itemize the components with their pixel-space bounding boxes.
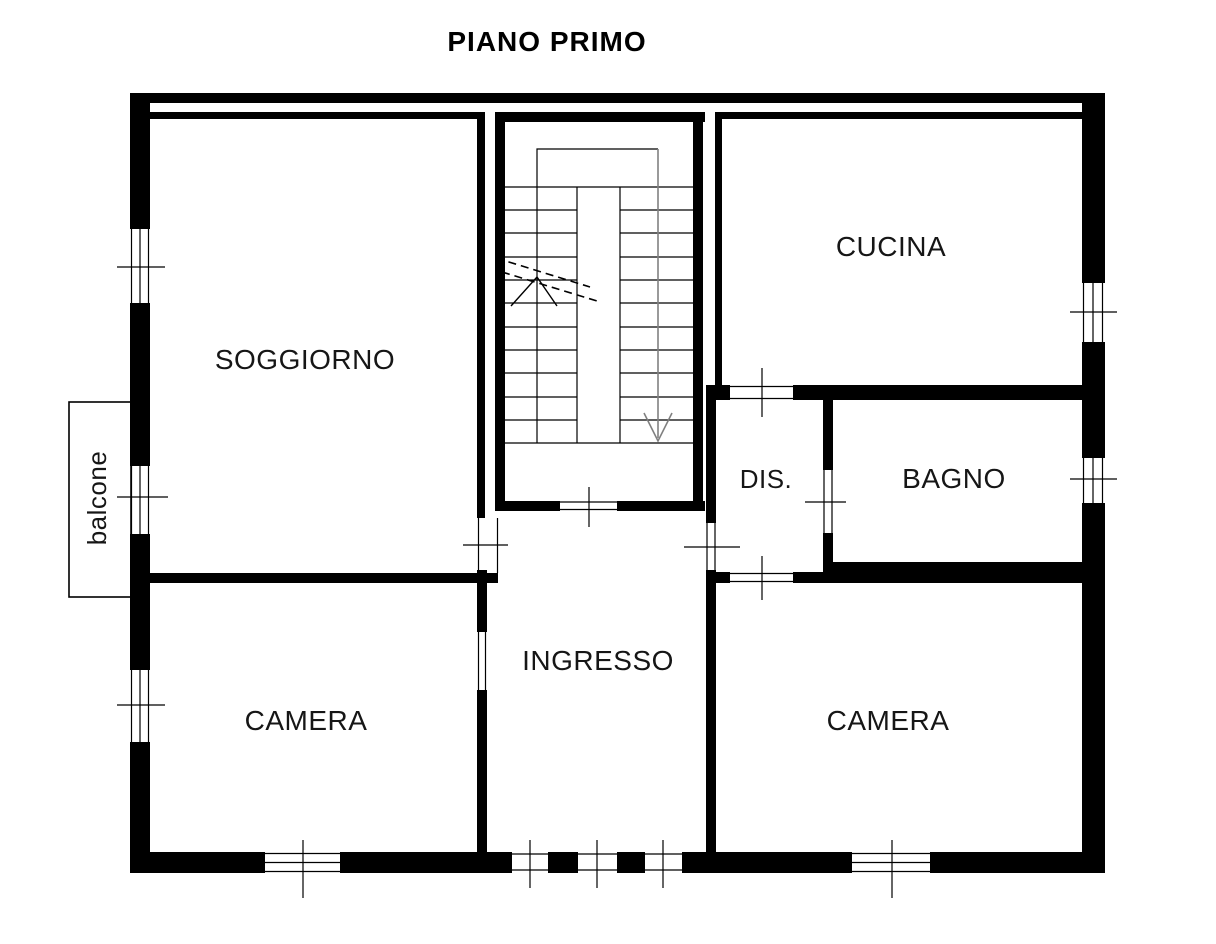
wall-ingresso-left — [477, 570, 487, 632]
room-label-bagno: BAGNO — [902, 465, 1006, 493]
staircase — [496, 149, 693, 443]
wall-outer-bottom — [682, 852, 852, 873]
wall-outer-top — [130, 93, 1105, 103]
window-symbol — [852, 854, 930, 872]
wall-cucina-bottom — [793, 385, 1082, 400]
window-symbol — [1084, 458, 1103, 503]
wall-ingresso-right — [706, 570, 716, 852]
stair-central-well — [577, 187, 620, 443]
room-label-balcone: balcone — [84, 451, 110, 546]
plan-title: PIANO PRIMO — [447, 28, 646, 56]
stair-landing-outline — [537, 149, 658, 187]
wall-cucina-top — [715, 112, 1082, 119]
wall-bagno-bottom — [833, 562, 1082, 572]
wall-stairwell-bottom — [495, 501, 560, 511]
room-label-camera-right: CAMERA — [827, 707, 950, 735]
wall-outer-left — [130, 534, 150, 670]
wall-outer-left — [130, 742, 150, 852]
stair-break-line — [496, 258, 597, 306]
window-symbol — [132, 229, 149, 303]
wall-cucina-bottom — [706, 385, 730, 400]
wall-dis-left — [706, 400, 716, 523]
wall-outer-right — [1082, 503, 1105, 852]
wall-outer-bottom — [130, 852, 265, 873]
wall-outer-right — [1082, 342, 1105, 458]
wall-cucina-left — [715, 112, 722, 385]
window-symbol — [132, 670, 149, 742]
wall-stairwell-top — [495, 112, 705, 122]
wall-outer-right — [1082, 93, 1105, 283]
room-label-ingresso: INGRESSO — [522, 647, 674, 675]
wall-soggiorno-camera-divider — [141, 573, 498, 583]
wall-stairwell-right — [693, 112, 703, 511]
wall-stairwell-bottom — [617, 501, 705, 511]
wall-soggiorno-top — [141, 112, 477, 119]
room-label-camera-left: CAMERA — [245, 707, 368, 735]
wall-camera-right-top — [706, 572, 730, 583]
stair-treads-right — [620, 210, 693, 420]
balcony-door-symbol — [132, 466, 149, 534]
floorplan-drawing — [0, 0, 1216, 944]
wall-pier — [548, 852, 578, 873]
wall-stairwell-left — [495, 112, 505, 511]
wall-dis-bagno-divider — [823, 533, 833, 572]
wall-ingresso-left — [477, 690, 487, 852]
wall-outer-bottom — [340, 852, 512, 873]
room-label-soggiorno: SOGGIORNO — [215, 346, 395, 374]
window-symbols — [132, 229, 1103, 872]
room-label-dis: DIS. — [740, 466, 793, 492]
wall-pier — [617, 852, 645, 873]
stair-flight-edges — [503, 187, 693, 443]
room-label-cucina: CUCINA — [836, 233, 946, 261]
wall-camera-right-top — [793, 572, 1082, 583]
floorplan-page: PIANO PRIMO SOGGIORNO CUCINA DIS. BAGNO … — [0, 0, 1216, 944]
wall-soggiorno-right — [477, 112, 485, 518]
wall-dis-bagno-divider — [823, 400, 833, 470]
wall-outer-bottom — [930, 852, 1105, 873]
stair-treads-left — [503, 210, 577, 420]
wall-outer-left — [130, 303, 150, 466]
door-opening-symbol — [479, 632, 486, 690]
